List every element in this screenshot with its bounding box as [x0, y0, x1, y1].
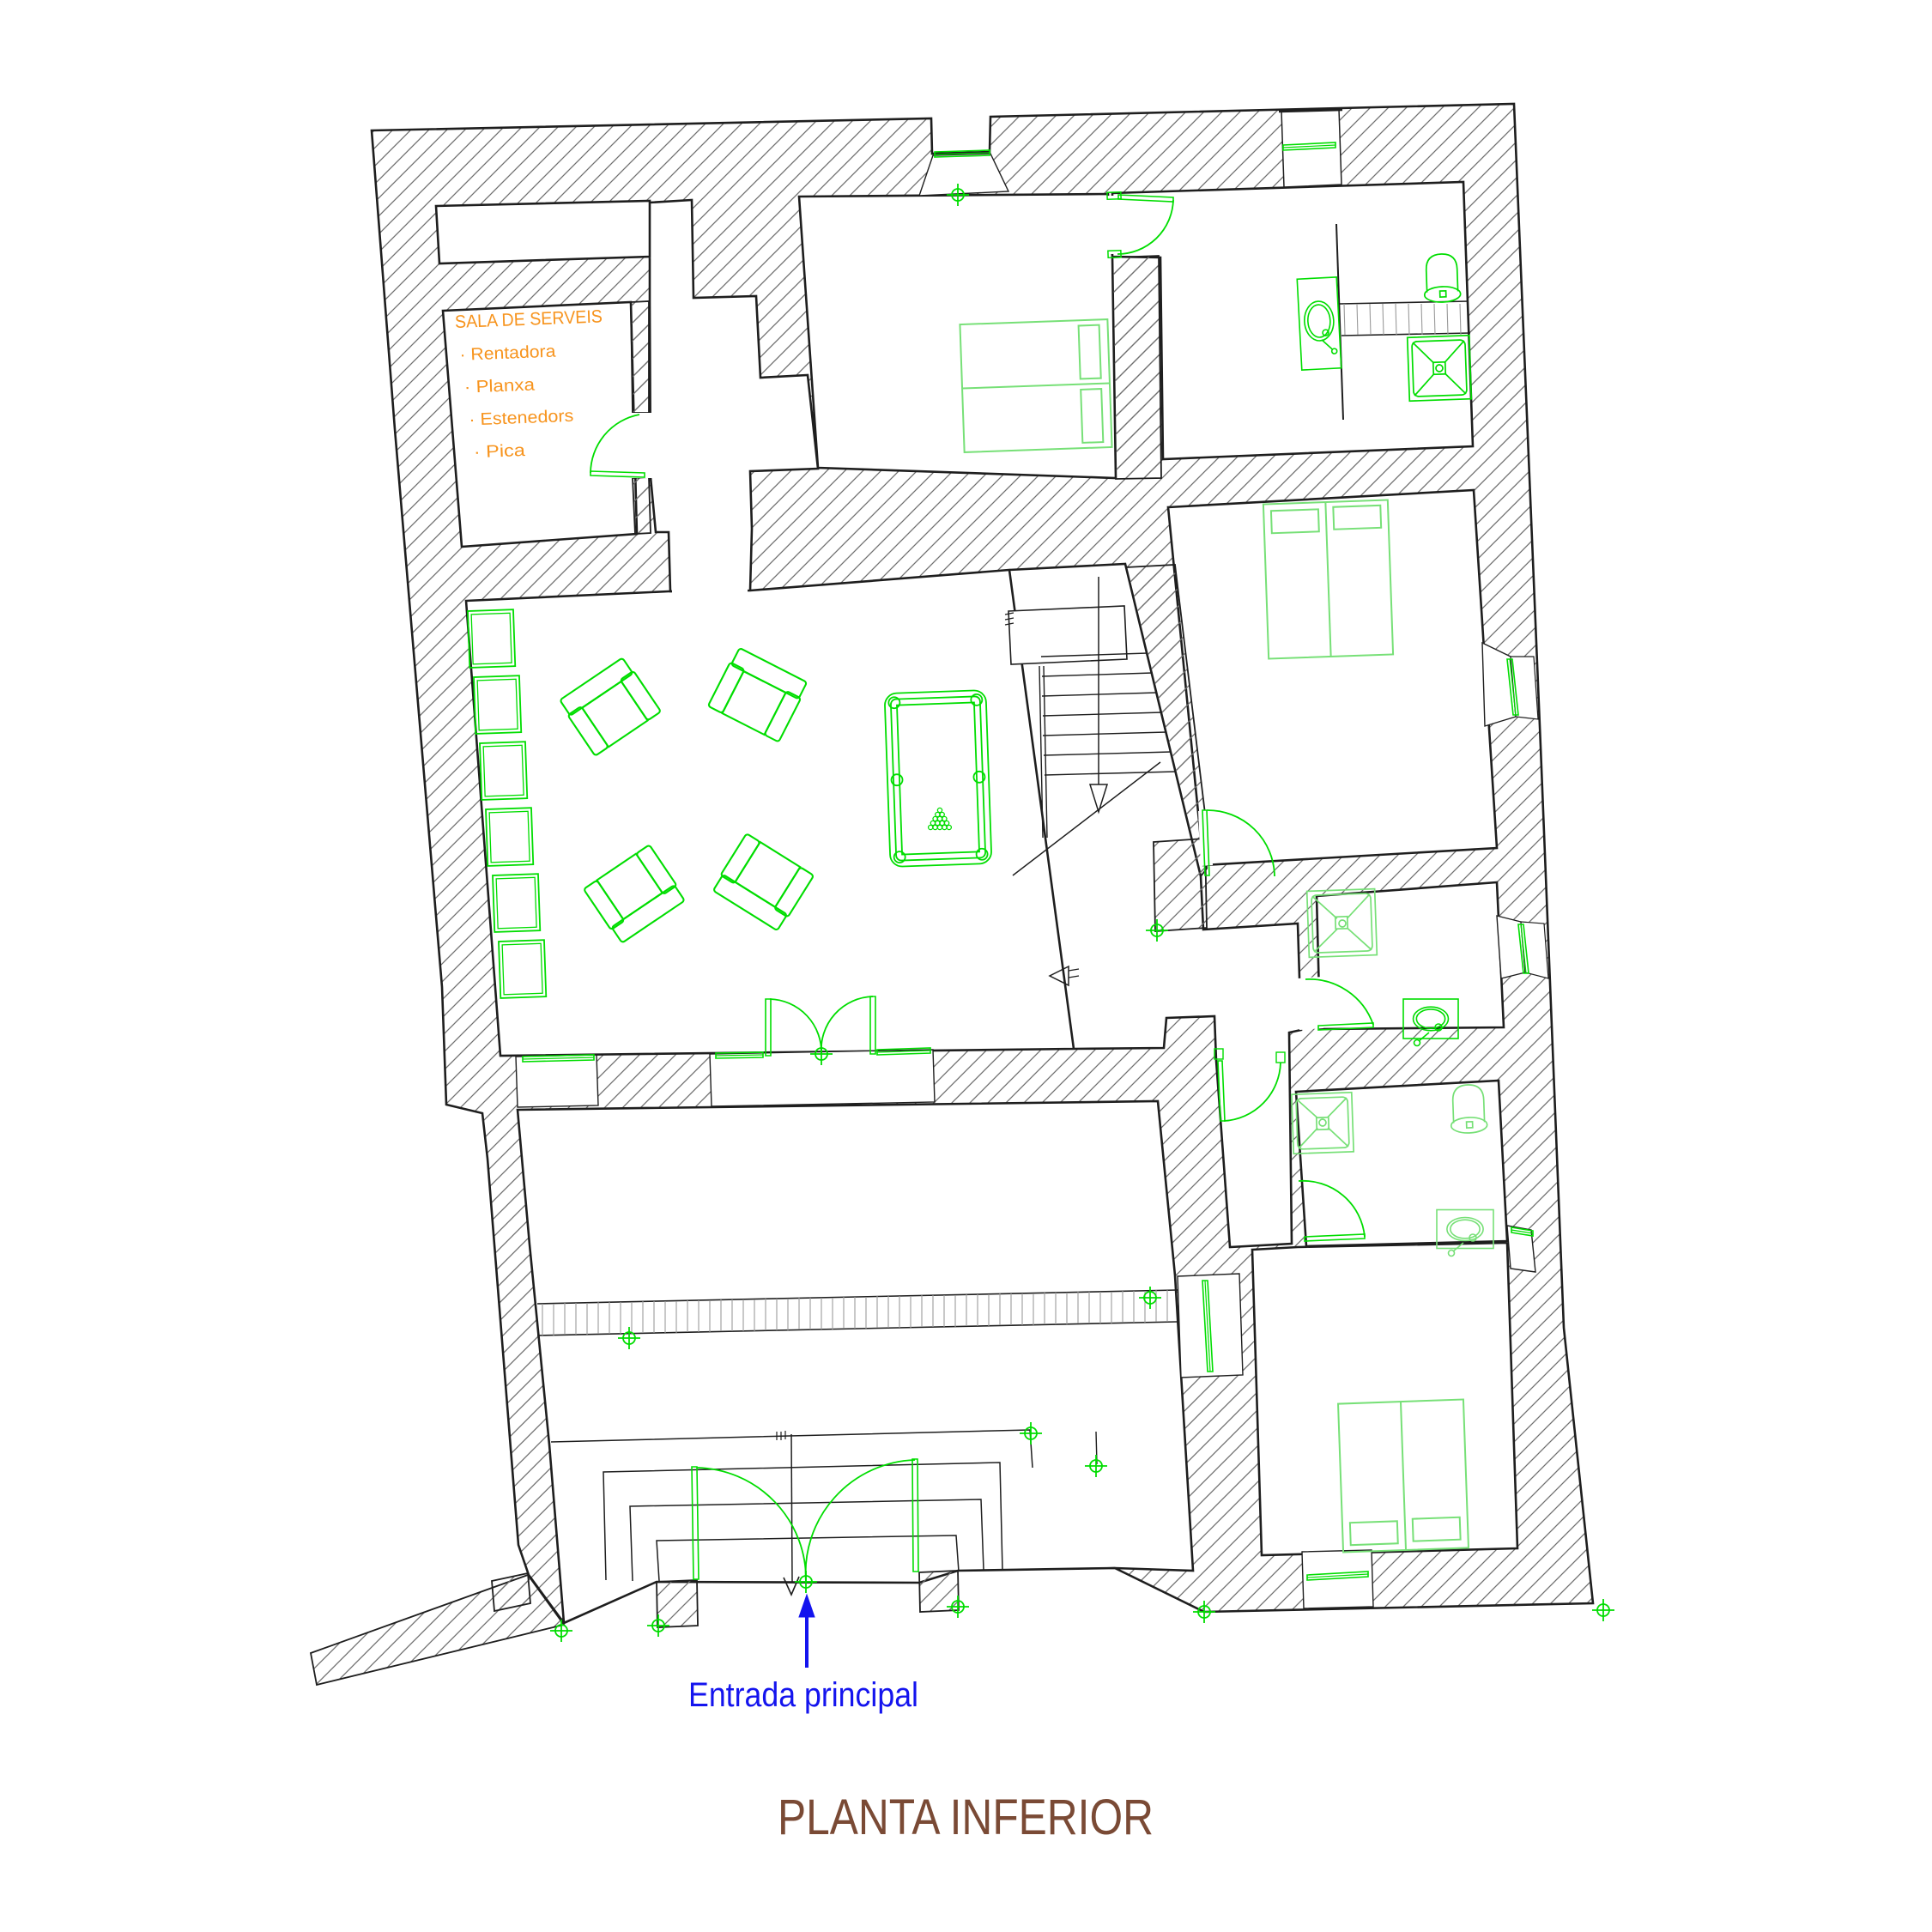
svg-text:PLANTA INFERIOR: PLANTA INFERIOR [778, 1790, 1154, 1845]
svg-text:· Planxa: · Planxa [464, 375, 536, 397]
svg-text:Entrada principal: Entrada principal [688, 1676, 918, 1714]
svg-text:· Rentadora: · Rentadora [459, 342, 557, 364]
svg-text:· Estenedors: · Estenedors [469, 407, 574, 430]
svg-text:· Pica: · Pica [473, 441, 526, 462]
